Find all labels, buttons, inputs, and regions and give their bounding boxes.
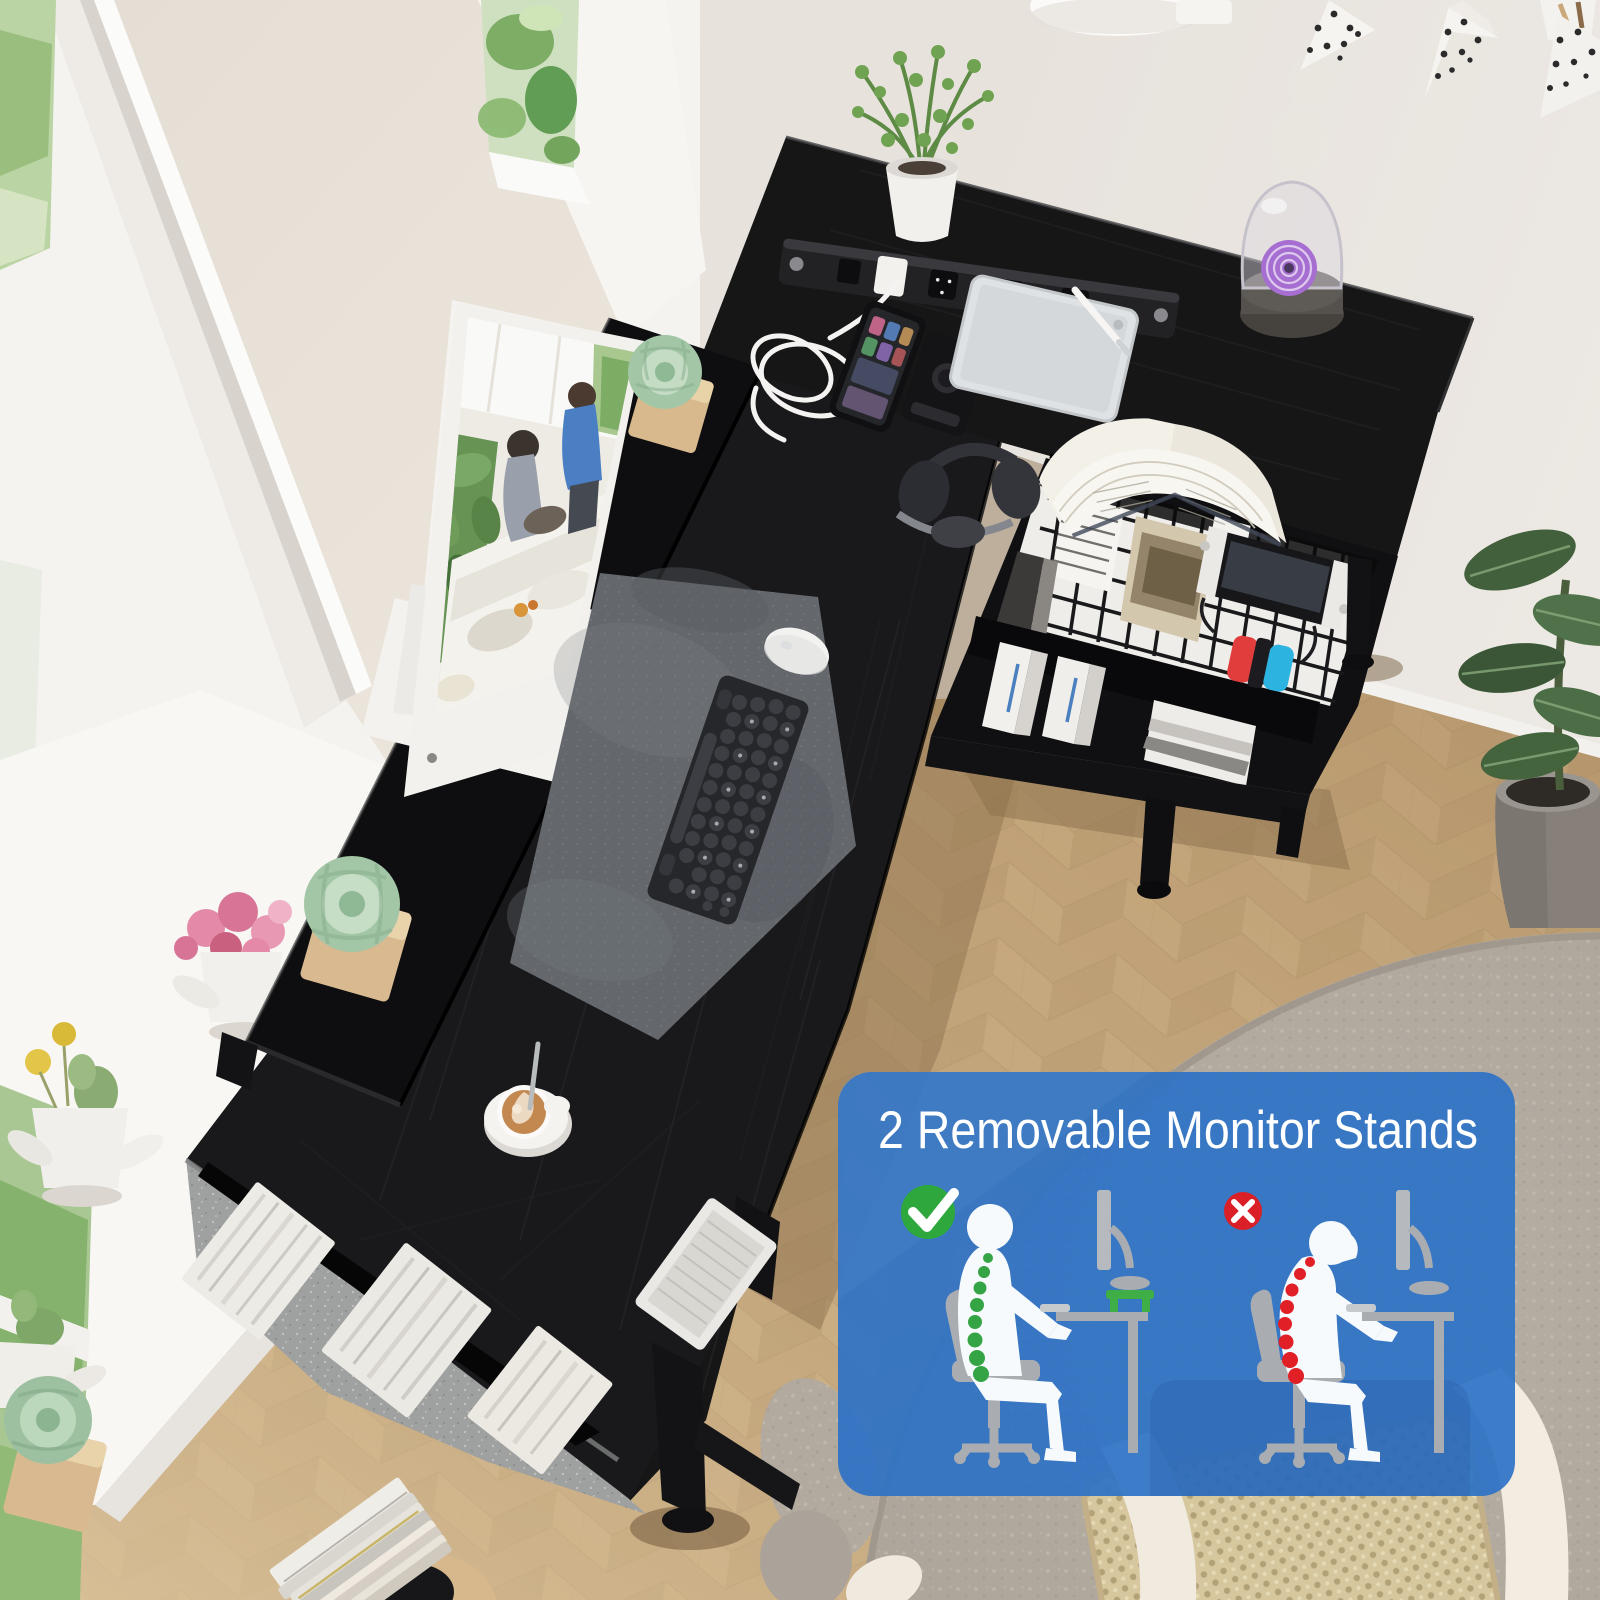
svg-text:2 Removable Monitor Stands: 2 Removable Monitor Stands <box>878 1101 1478 1160</box>
